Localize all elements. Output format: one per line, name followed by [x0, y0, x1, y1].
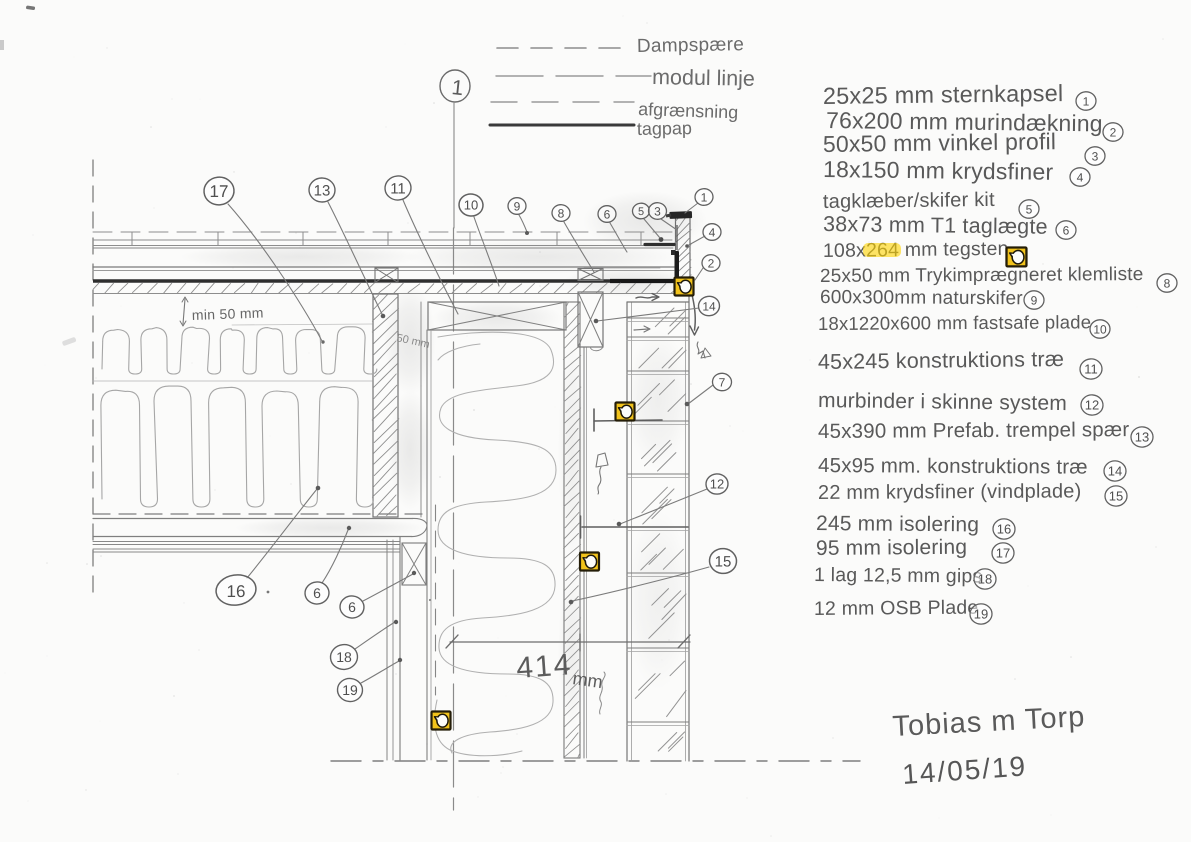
svg-text:18x150 mm krydsfiner: 18x150 mm krydsfiner	[823, 156, 1054, 185]
svg-text:17: 17	[996, 546, 1010, 561]
svg-text:11: 11	[1084, 362, 1098, 377]
svg-text:murbinder i skinne system: murbinder i skinne system	[818, 389, 1067, 415]
svg-text:mm: mm	[571, 668, 603, 692]
svg-text:10: 10	[464, 198, 478, 213]
svg-text:3: 3	[1092, 149, 1099, 163]
svg-text:6: 6	[348, 599, 356, 615]
svg-text:min 50 mm: min 50 mm	[192, 304, 264, 323]
svg-text:3: 3	[654, 204, 661, 218]
svg-text:245 mm isolering: 245 mm isolering	[816, 512, 979, 536]
svg-text:16: 16	[227, 582, 246, 601]
svg-text:6: 6	[604, 207, 611, 221]
svg-text:14: 14	[702, 299, 716, 313]
svg-text:modul linje: modul linje	[652, 65, 755, 91]
svg-text:6: 6	[313, 585, 321, 601]
svg-text:600x300mm naturskifer: 600x300mm naturskifer	[820, 287, 1023, 309]
svg-text:22 mm krydsfiner (vindplade): 22 mm krydsfiner (vindplade)	[818, 480, 1082, 504]
svg-text:95 mm isolering: 95 mm isolering	[816, 536, 967, 560]
svg-text:8: 8	[1164, 276, 1171, 290]
svg-text:1: 1	[701, 190, 708, 204]
svg-text:8: 8	[558, 206, 565, 220]
svg-text:1 lag 12,5 mm gips: 1 lag 12,5 mm gips	[814, 564, 983, 587]
svg-text:12: 12	[1085, 398, 1099, 413]
svg-text:45x95 mm. konstruktions træ: 45x95 mm. konstruktions træ	[818, 454, 1088, 479]
svg-text:6: 6	[1063, 223, 1070, 237]
svg-text:1: 1	[450, 76, 464, 100]
svg-text:11: 11	[390, 180, 406, 197]
svg-text:414: 414	[515, 648, 573, 685]
svg-text:4: 4	[709, 225, 716, 239]
svg-text:15: 15	[1109, 489, 1123, 504]
svg-text:7: 7	[719, 375, 726, 389]
svg-text:19: 19	[342, 682, 358, 698]
svg-text:13: 13	[314, 182, 331, 199]
svg-text:2: 2	[1110, 125, 1117, 139]
svg-text:17: 17	[210, 182, 229, 201]
svg-text:18: 18	[336, 649, 352, 665]
svg-text:tagpap: tagpap	[637, 118, 692, 139]
svg-text:18: 18	[978, 572, 992, 587]
svg-text:9: 9	[514, 199, 521, 213]
svg-text:tagklæber/skifer kit: tagklæber/skifer kit	[823, 189, 995, 213]
svg-text:5: 5	[638, 206, 644, 218]
svg-text:50x50 mm vinkel profil: 50x50 mm vinkel profil	[823, 128, 1057, 157]
svg-text:16: 16	[997, 522, 1011, 537]
svg-text:18x1220x600 mm fastsafe plade: 18x1220x600 mm fastsafe plade	[818, 311, 1091, 334]
svg-text:Dampspære: Dampspære	[637, 34, 745, 57]
svg-text:45x245 konstruktions træ: 45x245 konstruktions træ	[818, 347, 1064, 374]
svg-text:13: 13	[1135, 430, 1149, 445]
svg-text:10: 10	[1093, 322, 1107, 336]
svg-text:1: 1	[1083, 94, 1090, 108]
svg-text:108x264 mm tegsten: 108x264 mm tegsten	[823, 238, 1009, 262]
svg-text:2: 2	[708, 256, 715, 270]
svg-text:25x50 mm Trykimprægneret kleml: 25x50 mm Trykimprægneret klemliste	[820, 264, 1144, 287]
svg-text:19: 19	[974, 607, 988, 622]
svg-text:9: 9	[1031, 293, 1038, 307]
svg-text:12 mm OSB Plade: 12 mm OSB Plade	[814, 597, 979, 620]
svg-text:15: 15	[715, 553, 732, 570]
svg-text:4: 4	[1077, 170, 1084, 184]
svg-text:25x25 mm sternkapsel: 25x25 mm sternkapsel	[823, 80, 1064, 109]
svg-text:38x73 mm T1 taglægte: 38x73 mm T1 taglægte	[823, 212, 1048, 239]
svg-text:45x390 mm Prefab. trempel spær: 45x390 mm Prefab. trempel spær	[818, 418, 1129, 443]
svg-text:14: 14	[1108, 464, 1122, 479]
svg-text:12: 12	[710, 477, 724, 492]
